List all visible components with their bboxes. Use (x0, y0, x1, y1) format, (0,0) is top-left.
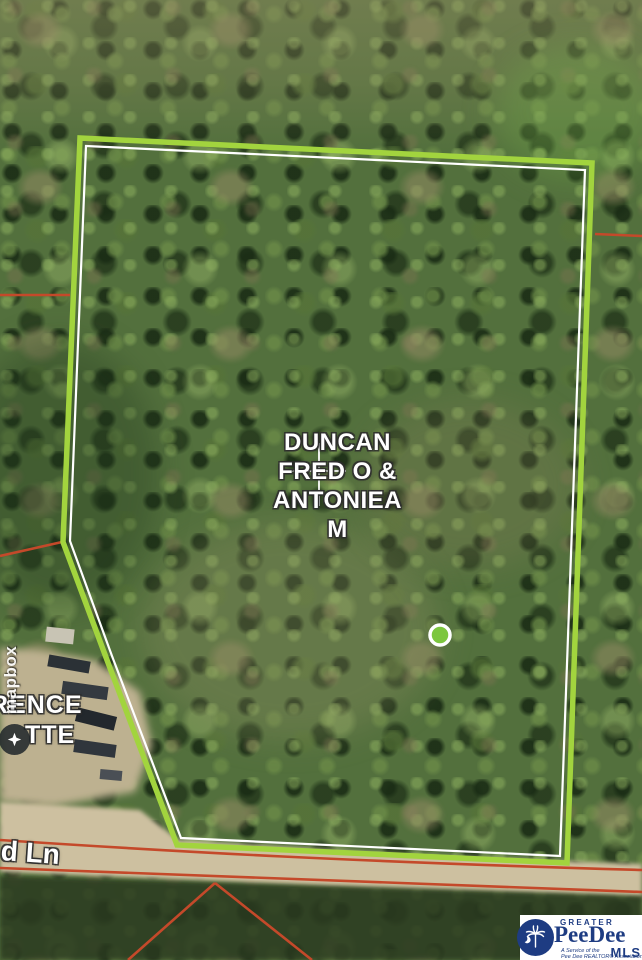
mapbox-logo-icon[interactable] (0, 724, 30, 755)
mapbox-star-icon (6, 731, 23, 748)
peedee-mls-logo: GREATER PeeDee A Service of the Pee Dee … (520, 915, 642, 960)
owner-label-line: FRED O & (235, 457, 440, 486)
road-name-label: d Ln (0, 835, 61, 871)
partial-owner-label-line2: TTE (25, 721, 75, 750)
palmetto-moon-icon (517, 919, 554, 956)
parcel-marker-dot[interactable] (430, 625, 450, 645)
logo-mls-text: MLS (611, 945, 641, 960)
owner-label-line: ANTONIEA (235, 486, 440, 515)
owner-label-line: DUNCAN (235, 428, 440, 457)
mapbox-wordmark[interactable]: mapbox (1, 600, 19, 714)
owner-parcel-label: DUNCAN FRED O & ANTONIEA M (235, 428, 440, 544)
map-canvas[interactable]: DUNCAN FRED O & ANTONIEA M RENCE TTE d L… (0, 0, 642, 960)
owner-label-line: M (235, 515, 440, 544)
